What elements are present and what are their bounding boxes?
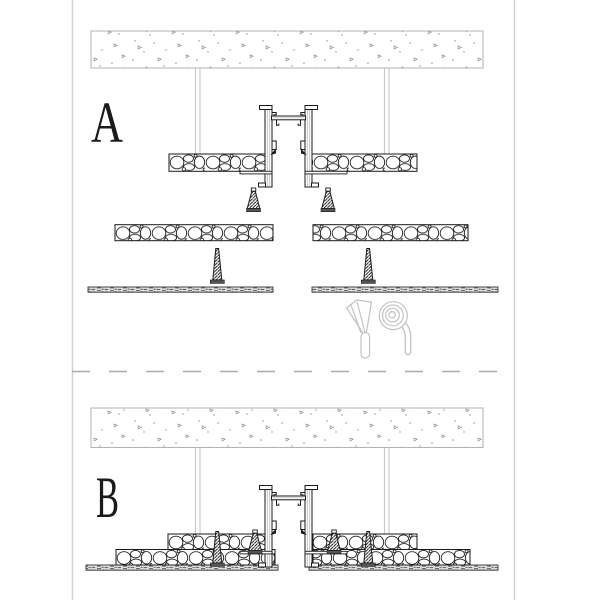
wood-wool-board-mid-right xyxy=(313,225,468,241)
wood-wool-board-top-right xyxy=(312,154,417,171)
detail-a-label: A xyxy=(91,90,123,155)
detail-a: A xyxy=(88,31,498,358)
mounting-profile xyxy=(240,106,347,188)
drawing-page: A xyxy=(0,0,600,600)
fastening-wedge-left xyxy=(247,188,261,212)
fixing-clip-icon xyxy=(379,302,408,352)
finish-board-right xyxy=(312,287,498,292)
hanger-rods xyxy=(196,448,390,534)
concrete-slab xyxy=(91,408,483,448)
technical-drawing: A xyxy=(0,0,600,600)
tapered-screw-left xyxy=(210,249,224,284)
detail-b: B xyxy=(86,408,498,570)
tapered-screw-right xyxy=(361,249,375,284)
trowel-icon xyxy=(347,300,372,358)
finish-board-right xyxy=(309,565,498,570)
fastening-wedge-right xyxy=(321,188,335,212)
finish-board-left xyxy=(86,565,278,570)
wood-wool-board-mid-left xyxy=(115,225,273,241)
finish-board-left xyxy=(88,287,273,292)
detail-b-label: B xyxy=(96,465,119,530)
concrete-slab xyxy=(91,31,483,68)
wood-wool-board-top-left xyxy=(169,154,272,171)
hanger-rods xyxy=(196,69,390,155)
